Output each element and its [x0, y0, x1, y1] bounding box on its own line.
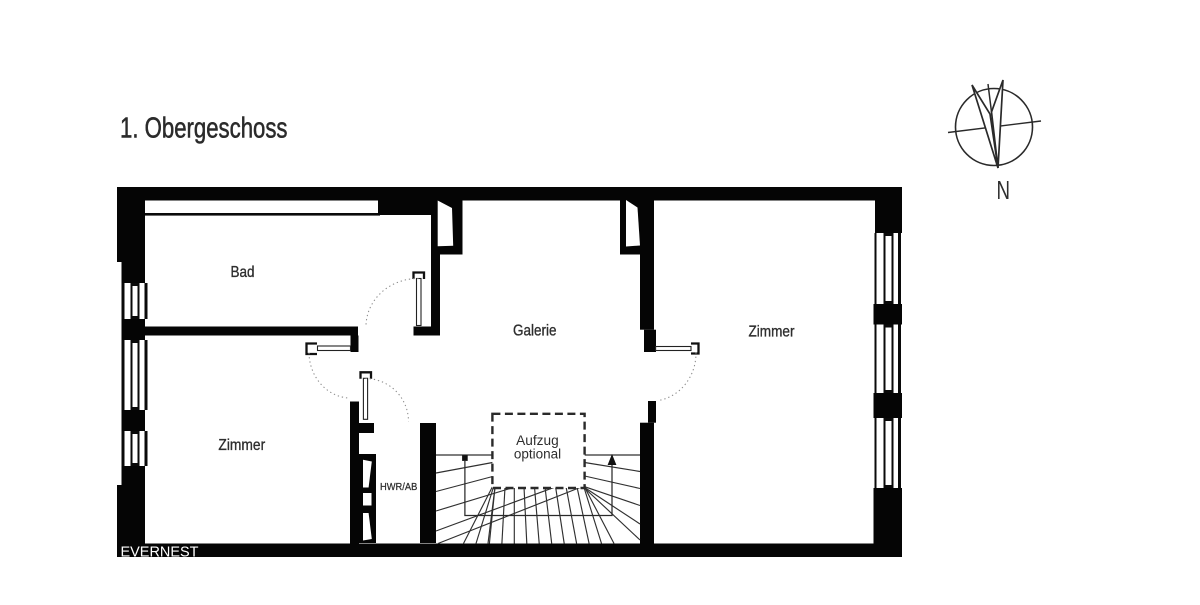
svg-text:Galerie: Galerie	[513, 323, 557, 340]
svg-text:Zimmer: Zimmer	[218, 437, 265, 454]
svg-text:optional: optional	[514, 447, 561, 462]
svg-text:Bad: Bad	[231, 264, 255, 281]
svg-text:Zimmer: Zimmer	[749, 324, 796, 341]
svg-text:1. Obergeschoss: 1. Obergeschoss	[120, 113, 288, 145]
svg-text:EVERNEST: EVERNEST	[121, 545, 199, 561]
svg-text:HWR/AB: HWR/AB	[380, 482, 418, 493]
svg-text:N: N	[997, 175, 1011, 205]
